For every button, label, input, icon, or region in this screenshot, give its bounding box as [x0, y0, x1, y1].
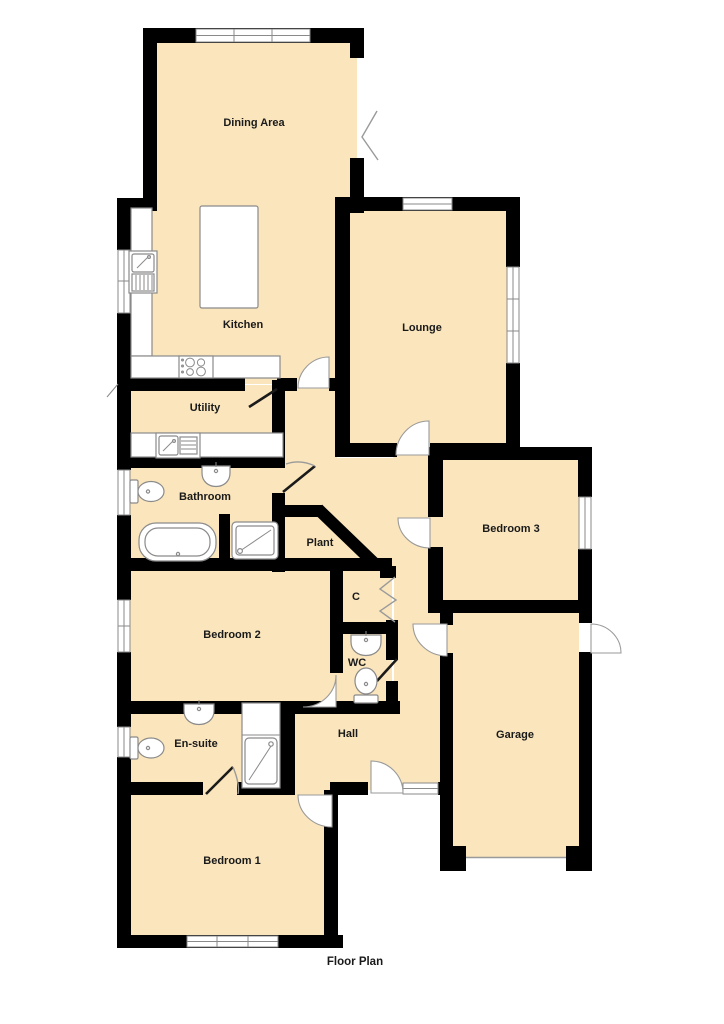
label-bedroom1: Bedroom 1: [203, 855, 260, 867]
kitchen-island: [200, 206, 258, 308]
hall-lower: [288, 706, 446, 790]
exterior-corner-line: [107, 384, 118, 397]
label-lounge: Lounge: [402, 322, 442, 334]
page-title: Floor Plan: [327, 956, 383, 968]
label-garage: Garage: [496, 729, 534, 741]
utility-sink-icon: [156, 433, 200, 458]
opening-zigzag-icon-dining: [362, 111, 378, 160]
label-bathroom: Bathroom: [179, 491, 231, 503]
shower-icon-bathroom: [232, 522, 278, 559]
basin-icon-wc: [351, 631, 381, 656]
label-closet: C: [352, 591, 360, 603]
window-kitchen-left: [118, 250, 130, 313]
window-ensuite-left: [118, 727, 130, 757]
basin-icon-bathroom: [202, 462, 230, 487]
toilet-icon-bathroom: [130, 480, 164, 503]
door-swing-garage-side-door: [591, 624, 621, 653]
basin-icon-ensuite: [184, 700, 214, 725]
window-lounge-right: [507, 267, 519, 363]
utility-counter: [131, 433, 283, 457]
label-dining-area: Dining Area: [223, 117, 285, 129]
shower-icon-ensuite: [242, 703, 280, 788]
window-bedroom3-right: [579, 497, 591, 549]
window-dining-top: [196, 29, 310, 42]
label-wc: WC: [348, 657, 366, 669]
label-utility: Utility: [190, 402, 221, 414]
window-lounge-top: [403, 198, 452, 210]
label-kitchen: Kitchen: [223, 319, 264, 331]
kitchen-sink-icon: [129, 251, 157, 293]
label-ensuite: En-suite: [174, 738, 217, 750]
label-hall: Hall: [338, 728, 358, 740]
window-bathroom-left: [118, 470, 130, 515]
hob-icon: [179, 356, 213, 378]
front-door-recess-garage: [579, 623, 592, 652]
toilet-icon-ensuite: [130, 737, 164, 759]
toilet-icon-wc: [354, 668, 378, 703]
label-bedroom2: Bedroom 2: [203, 629, 260, 641]
bath-icon: [139, 523, 216, 561]
hall-corridor: [283, 381, 337, 466]
window-bedroom1-bottom: [187, 936, 278, 947]
window-front-hall: [403, 783, 438, 794]
window-bedroom2-left: [118, 600, 130, 652]
label-plant: Plant: [307, 537, 334, 549]
floor-plan-drawing: Dining Area Kitchen Lounge Utility Bathr…: [0, 0, 724, 1024]
floor-plan-page: Dining Area Kitchen Lounge Utility Bathr…: [0, 0, 724, 1024]
label-bedroom3: Bedroom 3: [482, 523, 539, 535]
